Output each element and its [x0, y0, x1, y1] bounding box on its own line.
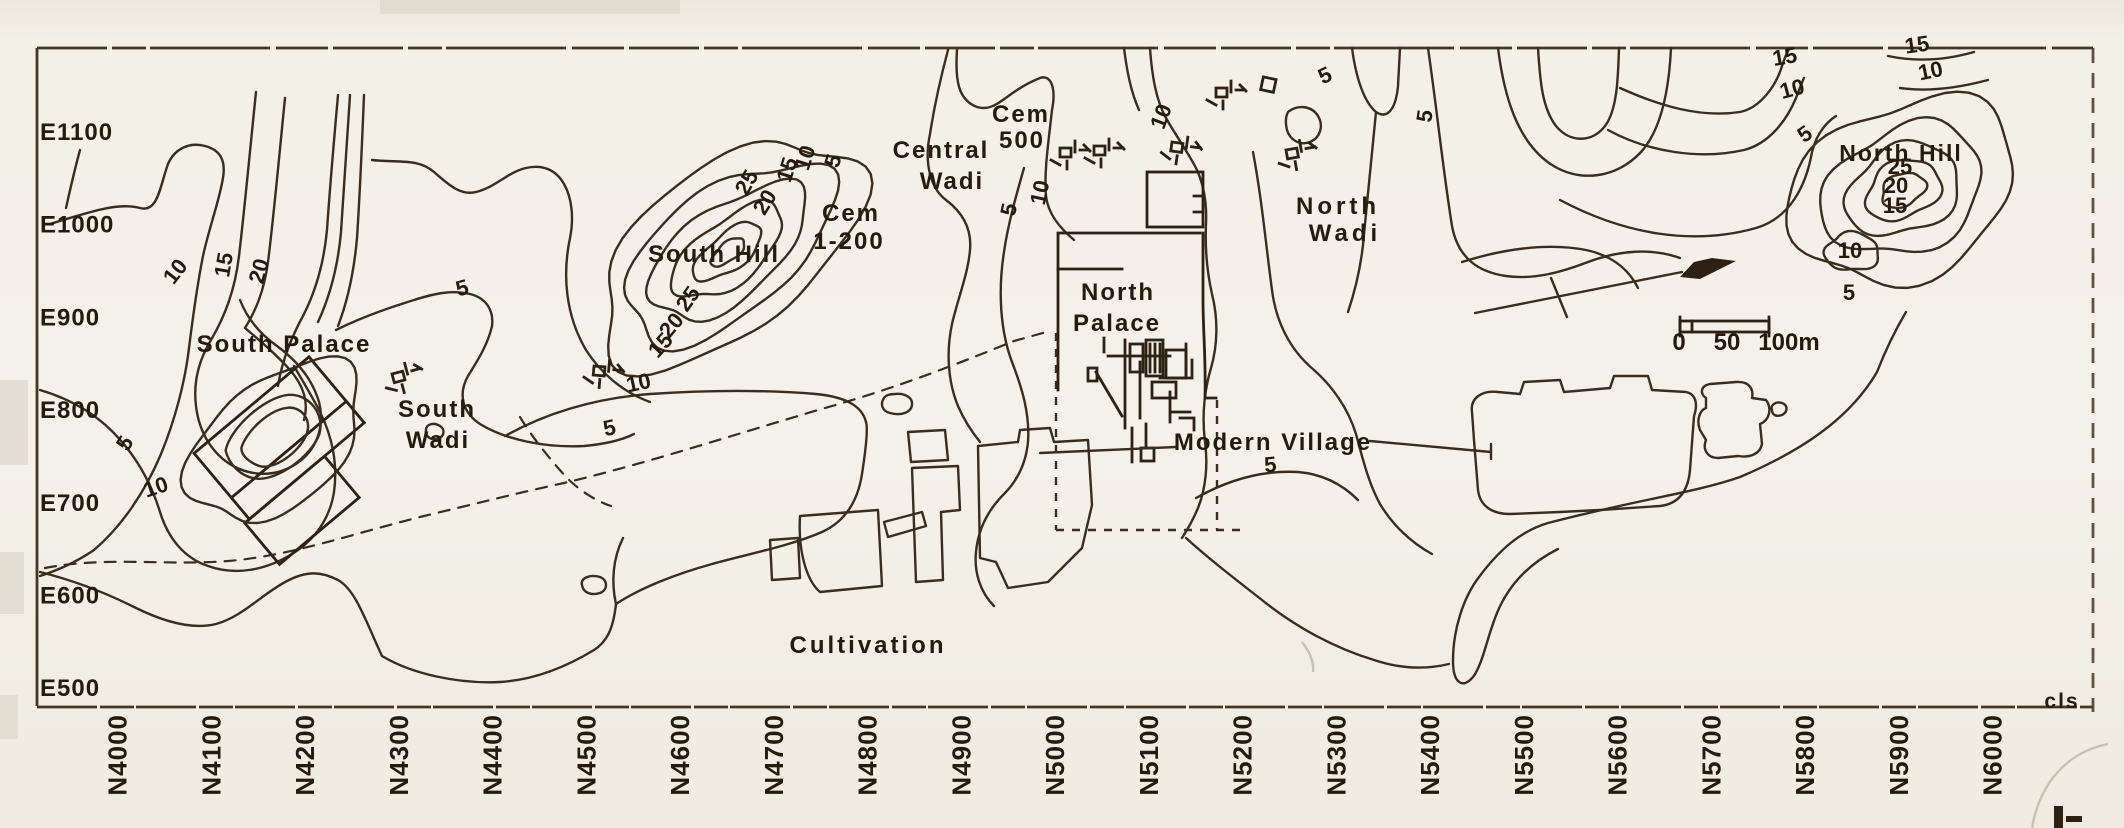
northing-label: N4500: [571, 714, 601, 796]
northing-label: N4600: [665, 714, 695, 796]
north-arrow-head: [1680, 258, 1736, 279]
contour-value-label: 5: [453, 274, 471, 301]
label-cem-500-line2: 500: [999, 127, 1045, 154]
label-north-wadi-line1: North: [1296, 193, 1380, 220]
contour-value-label: 10: [1916, 56, 1945, 86]
label-north-palace-line1: North: [1081, 279, 1155, 306]
ruin-marks-static: [1261, 77, 1321, 143]
label-cultivation: Cultivation: [790, 632, 947, 659]
desert-tracks: [45, 331, 1050, 568]
northing-label: N4900: [946, 714, 976, 796]
northing-label: N4400: [478, 714, 508, 796]
northing-label: N5000: [1040, 714, 1070, 796]
contour-value-label: 5: [111, 431, 139, 455]
label-cem-1-200-line1: Cem: [822, 200, 880, 227]
label-corner-note-cls: cls: [2044, 690, 2079, 713]
northing-label: N5300: [1321, 714, 1351, 796]
north-arrow: [1475, 258, 1736, 317]
label-south-wadi-line1: South: [398, 396, 476, 423]
northing-label: N4000: [103, 714, 133, 796]
label-north-palace-line2: Palace: [1073, 310, 1161, 337]
contour-value-label: 10: [1838, 238, 1862, 263]
label-central-wadi-line2: Wadi: [920, 168, 984, 195]
ruin-glyph-icon: [381, 359, 426, 396]
scanned-survey-map: E1100E1000E900E800E700E600E500 N4000N410…: [0, 0, 2124, 828]
label-scale-50: 50: [1714, 329, 1741, 356]
contour-value-label: 15: [1903, 30, 1931, 58]
contour-value-label: 10: [624, 368, 653, 398]
contour-value-label: 15: [1770, 42, 1798, 71]
contour-value-label: 10: [1777, 74, 1807, 104]
contour-value-label: 5: [1793, 120, 1817, 148]
contour-value-label: 10: [1025, 178, 1055, 207]
label-scale-0: 0: [1672, 329, 1685, 356]
northing-label: N5200: [1228, 714, 1258, 796]
label-cem-1-200-line2: 1-200: [813, 228, 884, 255]
easting-label: E700: [40, 490, 100, 517]
northing-label: N4200: [290, 714, 320, 796]
label-north-wadi-line2: Wadi: [1309, 220, 1381, 247]
ruin-glyph-icon: [1051, 141, 1090, 169]
northing-label: N5400: [1415, 714, 1445, 796]
contour-value-label: 15: [209, 250, 238, 278]
contour-value-label: 5: [1411, 108, 1437, 124]
northing-label: N4800: [853, 714, 883, 796]
modern-village-outlines-east: [1472, 376, 1787, 514]
easting-label: E500: [40, 675, 100, 702]
track-dashed-long: [45, 331, 1050, 568]
label-central-wadi-line1: Central: [893, 137, 990, 164]
contour-value-label: 5: [1314, 61, 1336, 89]
south-palace-plan: [189, 357, 398, 565]
easting-label: E900: [40, 304, 100, 331]
label-cem-500-line1: Cem: [992, 101, 1050, 128]
northing-label: N5800: [1790, 714, 1820, 796]
north-arrow-shaft: [1475, 272, 1682, 313]
ruin-glyph-icon: [1160, 134, 1203, 167]
contour-value-label: 5: [995, 201, 1022, 218]
label-scale-100m: 100m: [1758, 329, 1819, 356]
label-south-hill: South Hill: [648, 241, 780, 268]
contour-value-label: 20: [243, 256, 274, 286]
contour-value-label: 5: [601, 414, 618, 441]
northing-label: N6000: [1978, 714, 2008, 796]
northing-label: N4100: [196, 714, 226, 796]
northing-label: N4700: [759, 714, 789, 796]
easting-label: E1100: [40, 119, 113, 146]
northing-label: N5900: [1884, 714, 1914, 796]
label-south-wadi-line2: Wadi: [406, 427, 470, 454]
easting-label: E800: [40, 397, 100, 424]
north-palace-square-building: [1147, 172, 1203, 227]
ruin-glyph-icon: [1207, 81, 1246, 109]
ruin-glyph-icon: [1085, 139, 1124, 167]
map-canvas: E1100E1000E900E800E700E600E500 N4000N410…: [0, 0, 2124, 828]
easting-grid-labels: E1100E1000E900E800E700E600E500: [40, 119, 114, 702]
northing-label: N5600: [1603, 714, 1633, 796]
northing-grid-labels: N4000N4100N4200N4300N4400N4500N4600N4700…: [103, 714, 2008, 796]
contour-value-label: 10: [158, 254, 193, 289]
northing-label: N5100: [1134, 714, 1164, 796]
track-dashed-branch: [520, 417, 611, 506]
easting-label: E600: [40, 583, 100, 610]
northing-label: N5700: [1696, 714, 1726, 796]
contour-value-label: 5: [1843, 280, 1855, 305]
contour-value-label: 5: [819, 151, 847, 170]
northing-label: N5500: [1509, 714, 1539, 796]
label-south-palace: South Palace: [197, 331, 372, 358]
easting-label: E1000: [40, 212, 114, 239]
scan-artifacts: [0, 0, 2108, 828]
contour-value-label: 5: [1263, 452, 1277, 478]
northing-label: N4300: [384, 714, 414, 796]
contour-value-label: 15: [1883, 193, 1907, 218]
